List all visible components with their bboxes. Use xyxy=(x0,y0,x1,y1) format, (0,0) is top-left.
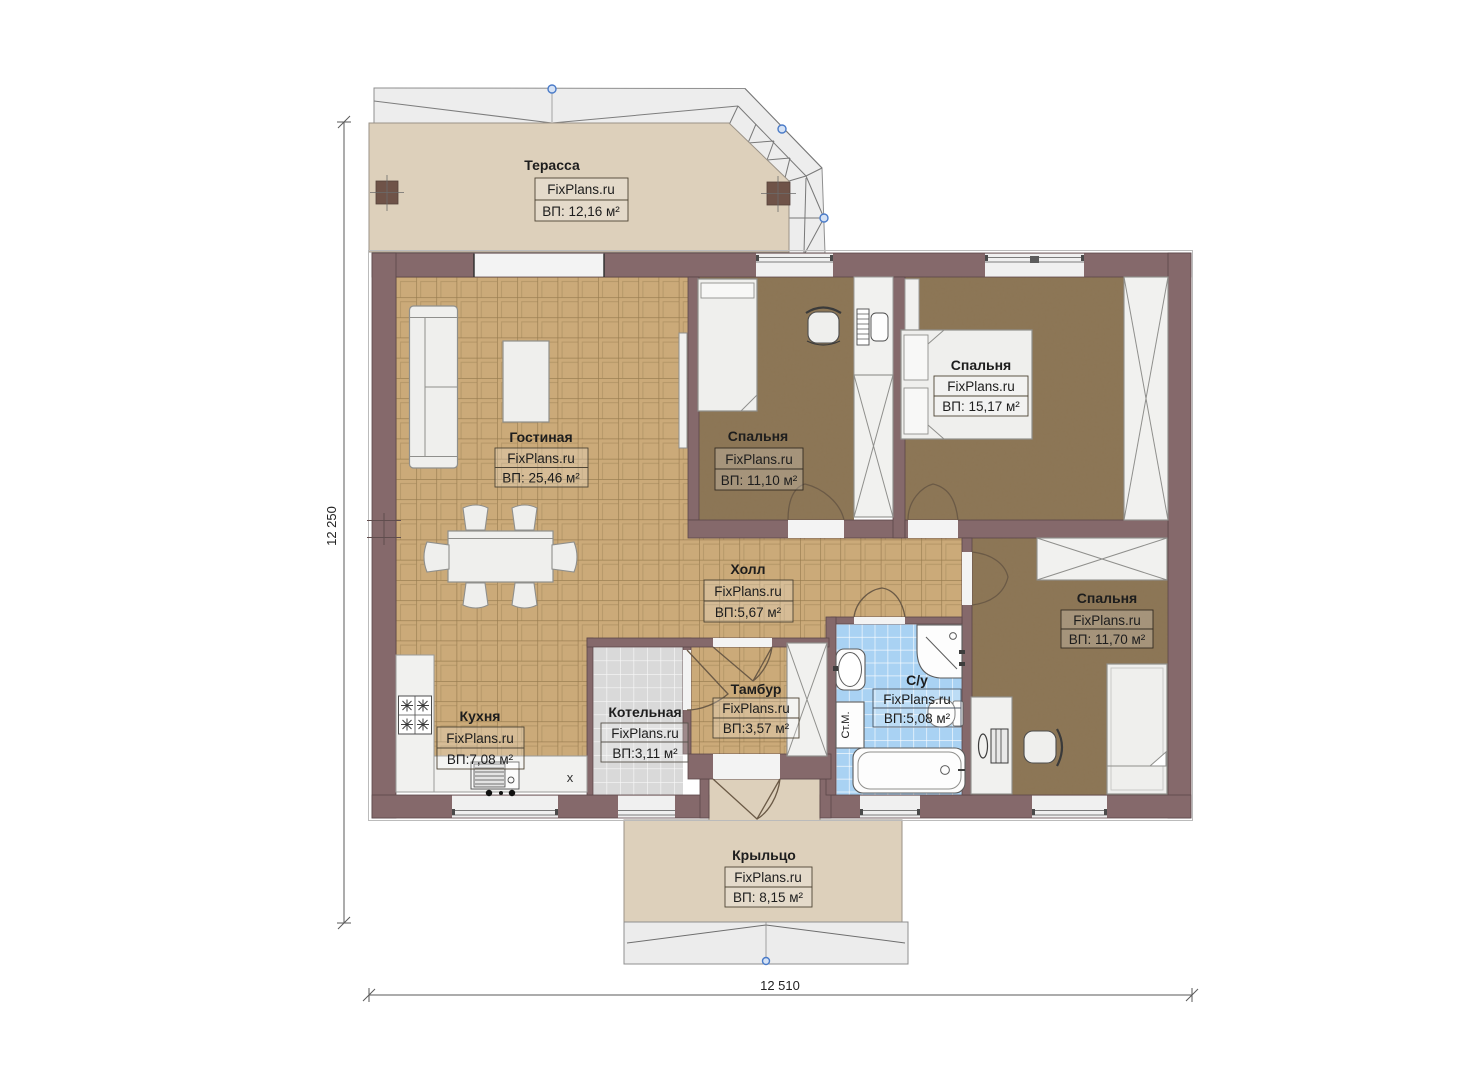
svg-text:Ст.М.: Ст.М. xyxy=(840,711,852,738)
svg-text:Котельная: Котельная xyxy=(608,704,681,720)
svg-text:ВП: 11,70 м²: ВП: 11,70 м² xyxy=(1069,632,1146,647)
svg-text:ВП:3,11 м²: ВП:3,11 м² xyxy=(612,746,678,761)
svg-text:FixPlans.ru: FixPlans.ru xyxy=(611,726,679,741)
svg-text:ВП: 25,46 м²: ВП: 25,46 м² xyxy=(502,471,580,486)
svg-text:Крыльцо: Крыльцо xyxy=(732,847,796,863)
svg-text:FixPlans.ru: FixPlans.ru xyxy=(714,584,782,599)
svg-text:Гостиная: Гостиная xyxy=(509,429,572,445)
svg-text:FixPlans.ru: FixPlans.ru xyxy=(547,182,615,197)
svg-text:12 510: 12 510 xyxy=(760,978,800,993)
svg-text:ВП:7,08 м²: ВП:7,08 м² xyxy=(447,752,514,767)
svg-text:FixPlans.ru: FixPlans.ru xyxy=(722,701,790,716)
svg-text:FixPlans.ru: FixPlans.ru xyxy=(947,379,1015,394)
svg-text:Кухня: Кухня xyxy=(460,708,501,724)
svg-text:С/у: С/у xyxy=(906,672,928,688)
svg-text:ВП: 12,16 м²: ВП: 12,16 м² xyxy=(542,204,620,219)
svg-text:FixPlans.ru: FixPlans.ru xyxy=(734,870,802,885)
svg-text:ВП: 15,17 м²: ВП: 15,17 м² xyxy=(942,399,1020,414)
svg-text:FixPlans.ru: FixPlans.ru xyxy=(725,452,793,467)
svg-text:FixPlans.ru: FixPlans.ru xyxy=(446,731,514,746)
svg-text:Терасса: Терасса xyxy=(524,157,580,173)
svg-text:Тамбур: Тамбур xyxy=(731,681,782,697)
svg-text:х: х xyxy=(567,770,574,785)
svg-text:ВП:3,57 м²: ВП:3,57 м² xyxy=(723,721,790,736)
svg-text:Спальня: Спальня xyxy=(728,428,788,444)
svg-text:12 250: 12 250 xyxy=(324,506,339,546)
svg-text:Холл: Холл xyxy=(730,561,765,577)
svg-text:ВП:5,08 м²: ВП:5,08 м² xyxy=(884,711,951,726)
svg-text:FixPlans.ru: FixPlans.ru xyxy=(1073,613,1141,628)
svg-text:ВП: 8,15 м²: ВП: 8,15 м² xyxy=(733,890,804,905)
svg-text:ВП:5,67 м²: ВП:5,67 м² xyxy=(715,605,782,620)
svg-text:ВП: 11,10 м²: ВП: 11,10 м² xyxy=(721,473,798,488)
svg-text:FixPlans.ru: FixPlans.ru xyxy=(507,451,575,466)
svg-text:Спальня: Спальня xyxy=(1077,590,1137,606)
svg-text:Спальня: Спальня xyxy=(951,357,1011,373)
svg-text:FixPlans.ru: FixPlans.ru xyxy=(883,692,951,707)
